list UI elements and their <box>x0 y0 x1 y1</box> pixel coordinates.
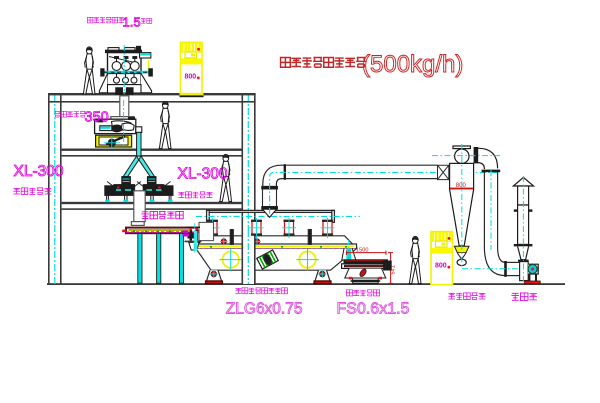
svg-text:1500: 1500 <box>356 248 368 254</box>
svg-text:XL-300: XL-300 <box>178 166 228 183</box>
svg-text:XL-300: XL-300 <box>14 163 64 180</box>
svg-text:1.5: 1.5 <box>123 15 141 30</box>
svg-text:350: 350 <box>85 110 109 126</box>
svg-text:(500kg/h): (500kg/h) <box>362 51 463 78</box>
svg-text:FS0.6x1.5: FS0.6x1.5 <box>337 301 410 318</box>
svg-text:ZLG6x0.75: ZLG6x0.75 <box>226 301 303 318</box>
